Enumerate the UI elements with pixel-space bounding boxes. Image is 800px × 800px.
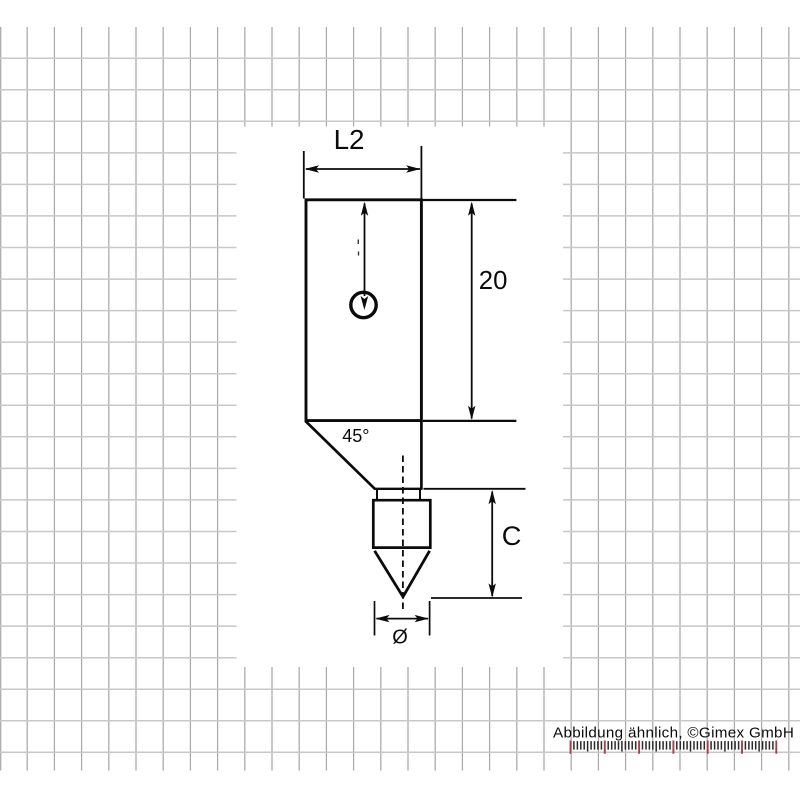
svg-text:20: 20 (479, 267, 508, 295)
svg-text:C: C (502, 520, 522, 551)
svg-text:45°: 45° (342, 425, 369, 446)
svg-text:L2: L2 (334, 124, 365, 155)
svg-text:Abbildung ähnlich, ©Gimex GmbH: Abbildung ähnlich, ©Gimex GmbH (553, 725, 794, 742)
svg-text:Ø: Ø (392, 626, 408, 648)
